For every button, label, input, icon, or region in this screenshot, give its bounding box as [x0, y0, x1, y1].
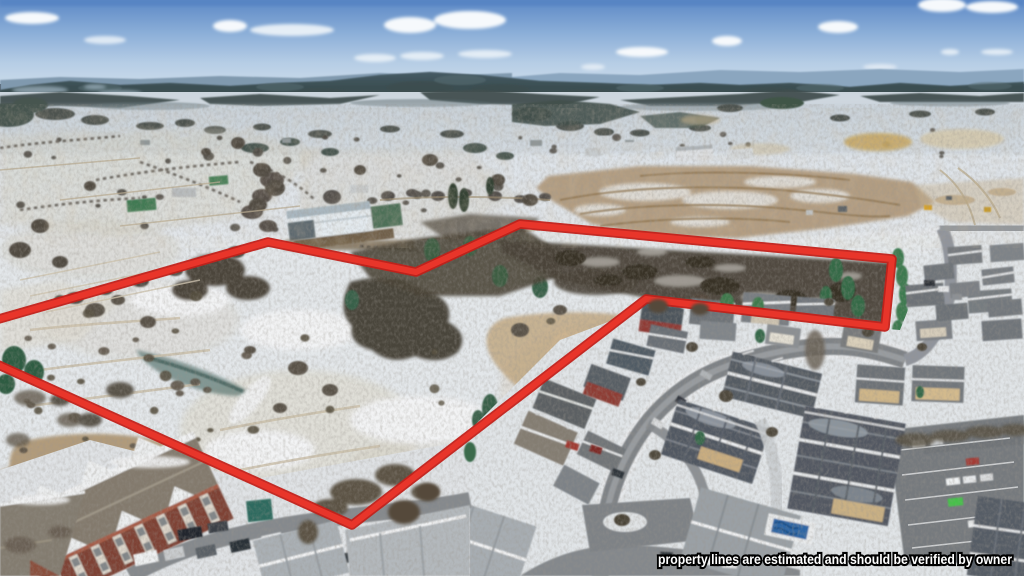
svg-text:property lines are estimated a: property lines are estimated and should …: [658, 552, 1013, 567]
